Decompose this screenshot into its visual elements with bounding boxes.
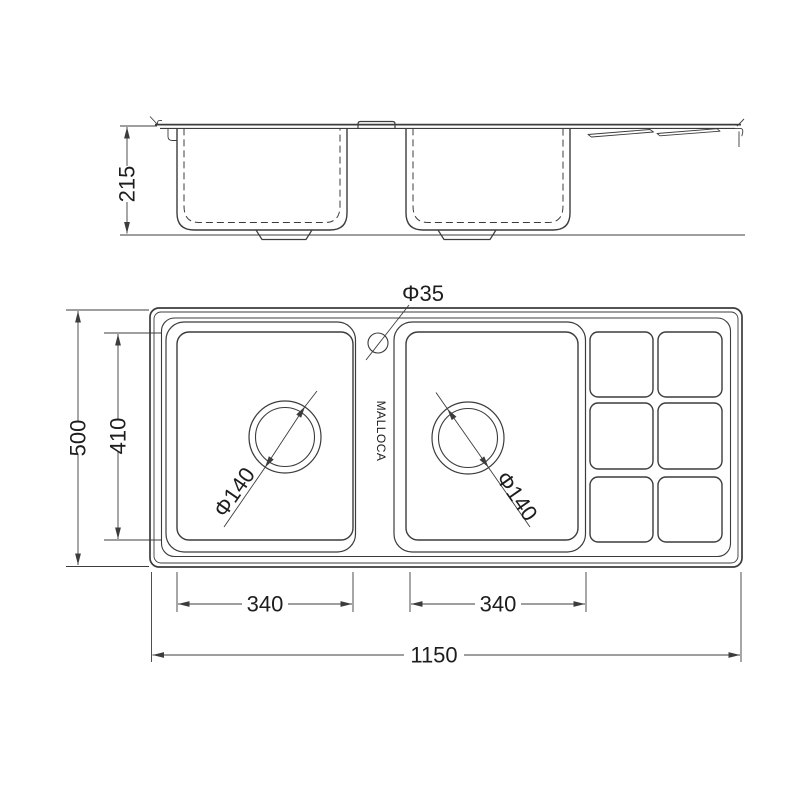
- drainboard-pads: [590, 332, 722, 542]
- left-bowl-section-hidden-line: [184, 128, 340, 222]
- dim-label-410: 410: [106, 418, 131, 455]
- drainboard-groove-profile: [588, 130, 654, 138]
- dim-410: 410: [104, 333, 161, 540]
- plan-view: Φ35 MALLOCA Φ140 Φ140 500 410: [66, 281, 742, 668]
- deck-edge: [162, 318, 731, 557]
- dim-label-340-left: 340: [247, 592, 284, 617]
- dim-label-215: 215: [115, 166, 140, 203]
- right-bowl-section-outline: [406, 128, 570, 230]
- side-view: 215: [115, 117, 745, 240]
- drainboard-pad: [658, 403, 722, 469]
- drainboard-pad: [658, 477, 722, 542]
- dim-line: [265, 407, 305, 468]
- dim-label-340-right: 340: [480, 592, 517, 617]
- left-bowl-inner-edge: [177, 332, 353, 540]
- dim-340-left: 340: [177, 572, 353, 617]
- right-bowl-outer-edge: [394, 322, 586, 552]
- sink-technical-drawing: 215 Φ35 MALLOC: [0, 0, 800, 800]
- dim-line: [448, 409, 489, 468]
- dim-label-right-drain: Φ140: [491, 467, 543, 526]
- dim-label-left-drain: Φ140: [208, 463, 260, 522]
- dim-label-1150: 1150: [410, 643, 457, 668]
- dim-340-right: 340: [410, 572, 586, 617]
- brand-logo-text: MALLOCA: [374, 401, 388, 462]
- dim-label-faucet-hole: Φ35: [402, 281, 444, 306]
- sink-rim-inner-edge: [154, 312, 738, 563]
- left-bowl-outer-edge: [166, 322, 356, 552]
- drainboard-pad: [590, 332, 653, 397]
- technical-drawing-page: 215 Φ35 MALLOC: [0, 0, 800, 800]
- right-edge-profile: [735, 119, 744, 147]
- dim-215: 215: [115, 126, 745, 235]
- drainboard-pad: [590, 477, 653, 542]
- leader-line: [366, 305, 409, 360]
- drainboard-pad: [658, 332, 722, 397]
- drainboard-pad: [590, 403, 653, 469]
- left-bowl-section-outline: [177, 128, 347, 230]
- faucet-hole-callout: Φ35: [366, 281, 444, 360]
- right-bowl-section-hidden-line: [413, 128, 563, 222]
- drainboard-groove-profile: [657, 129, 720, 136]
- dim-1150: 1150: [152, 572, 742, 668]
- dim-label-500: 500: [66, 420, 91, 457]
